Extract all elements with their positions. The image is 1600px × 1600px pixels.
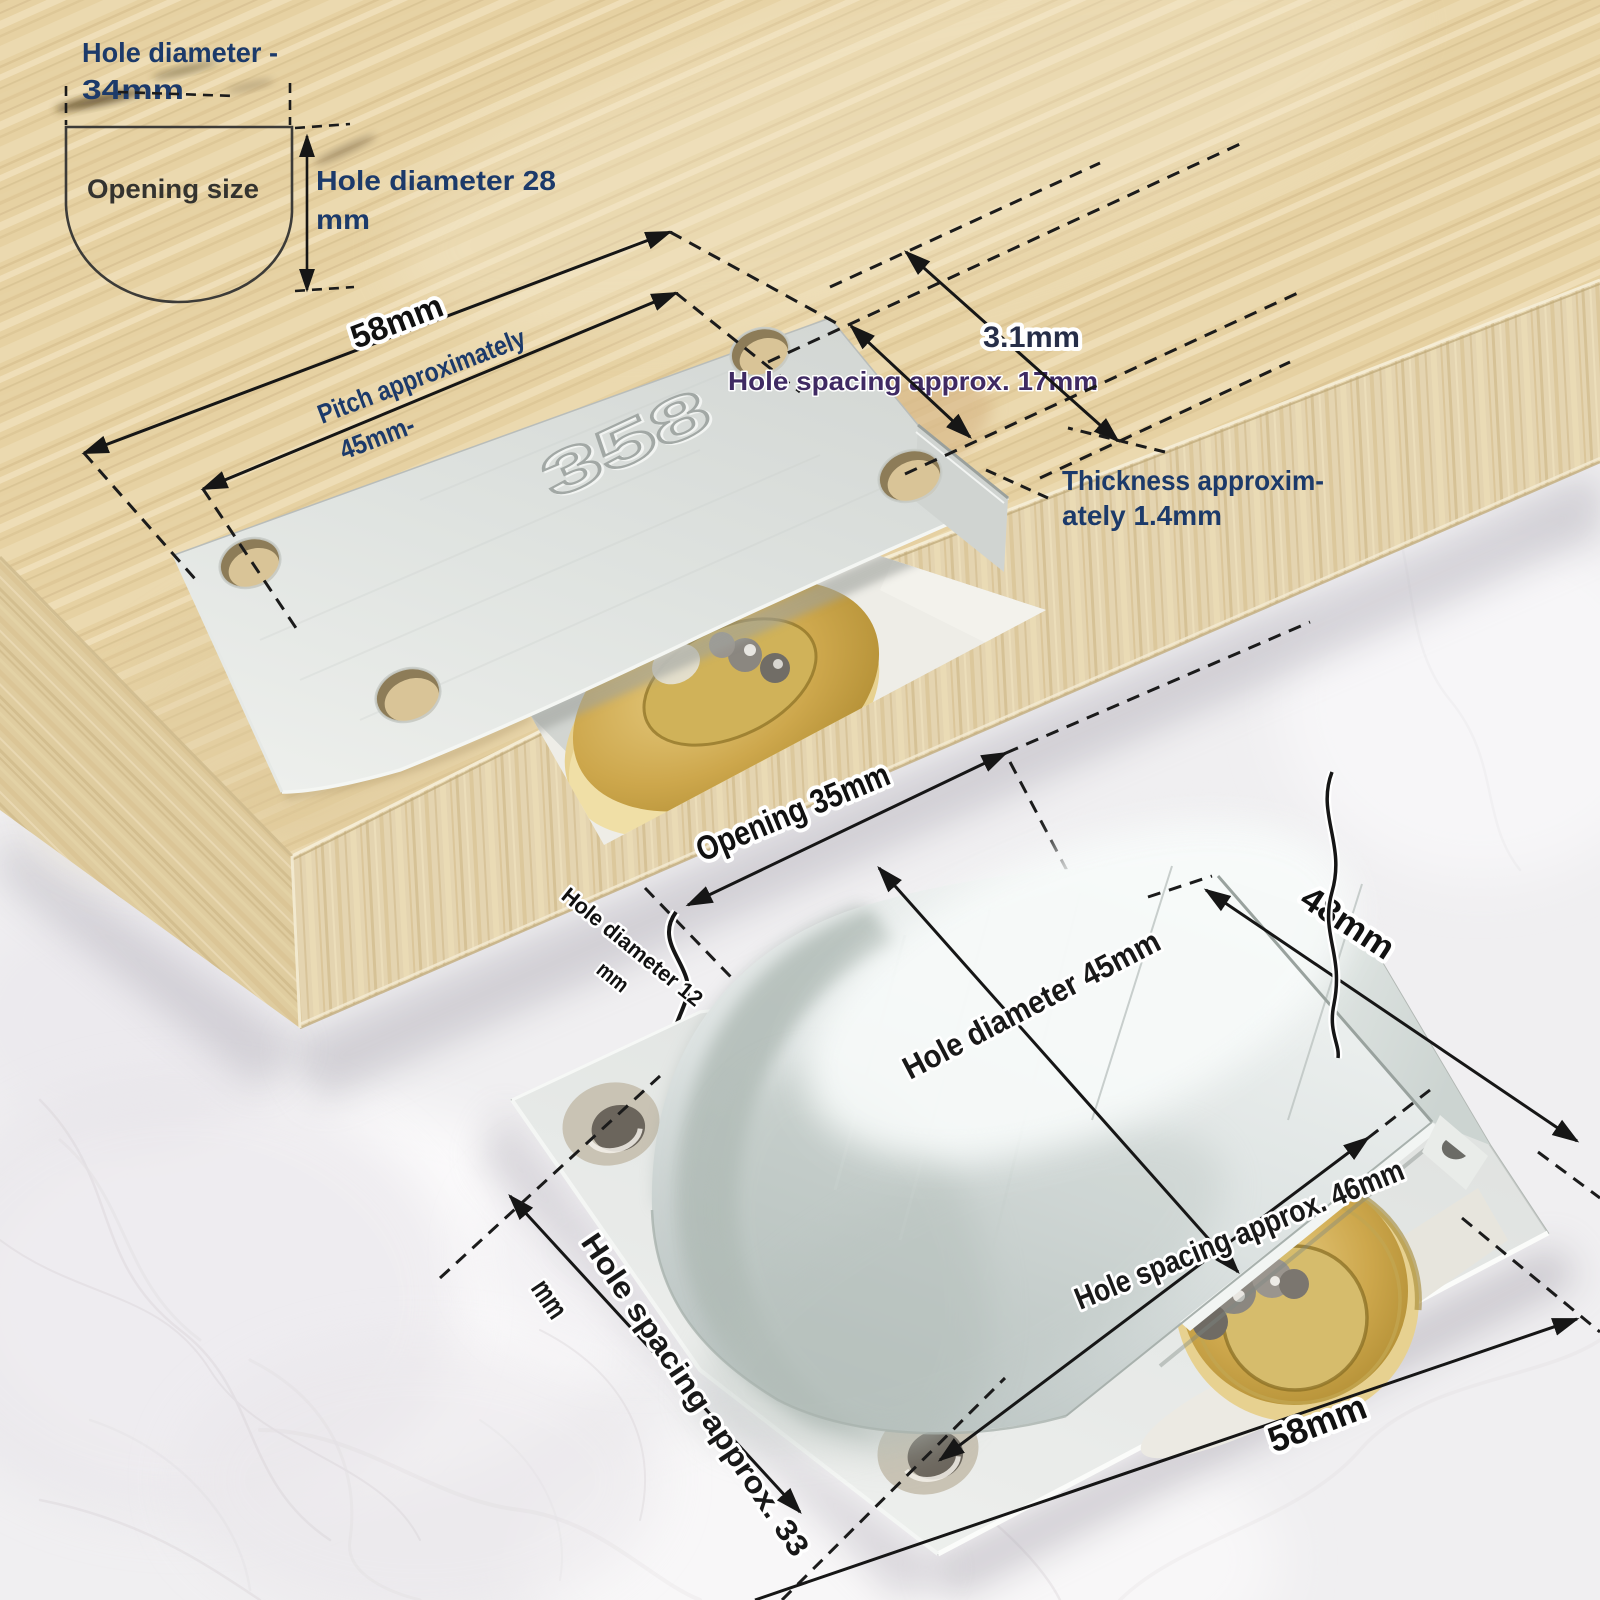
svg-text:ately 1.4mm: ately 1.4mm	[1062, 500, 1222, 531]
svg-text:34mm: 34mm	[82, 74, 184, 105]
svg-text:Opening size: Opening size	[87, 174, 259, 204]
svg-text:Thickness approxim-: Thickness approxim-	[1062, 465, 1324, 496]
svg-text:mm: mm	[316, 204, 370, 235]
svg-text:Hole diameter -: Hole diameter -	[82, 37, 278, 68]
svg-text:Hole diameter 28: Hole diameter 28	[316, 165, 556, 196]
svg-text:3.1mm: 3.1mm	[983, 321, 1080, 354]
svg-text:Hole spacing approx. 17mm: Hole spacing approx. 17mm	[728, 366, 1098, 396]
